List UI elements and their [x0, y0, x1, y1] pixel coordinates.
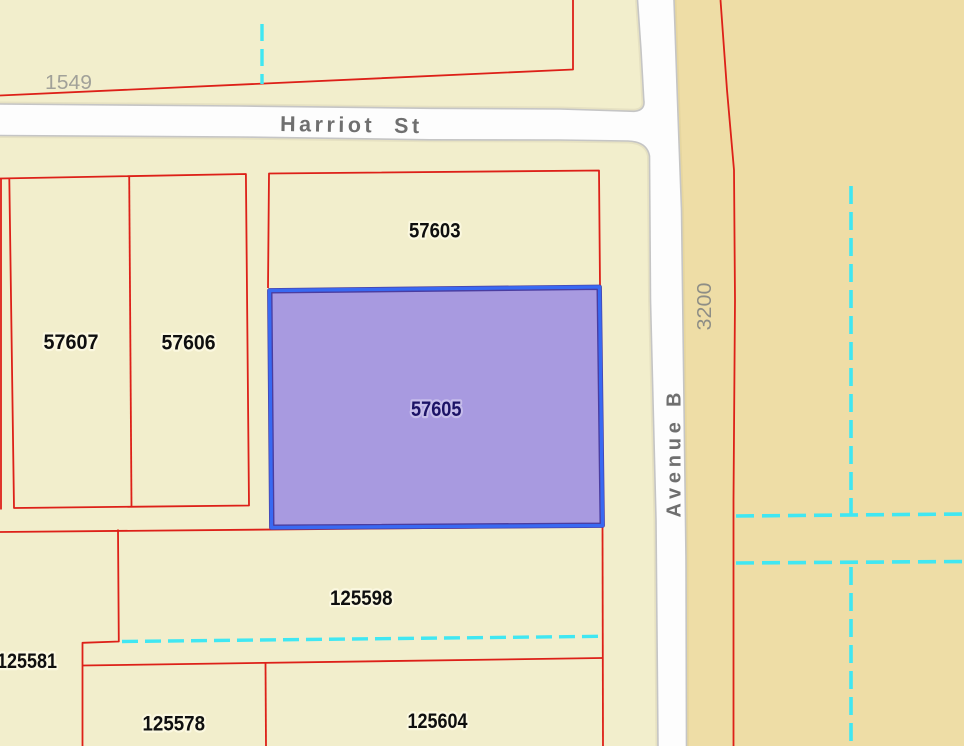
svg-text:57605: 57605 — [411, 398, 462, 421]
svg-text:3200: 3200 — [694, 283, 716, 331]
svg-text:Harriot St: Harriot St — [280, 112, 419, 138]
svg-text:125604: 125604 — [408, 710, 468, 733]
svg-text:57603: 57603 — [409, 220, 461, 243]
svg-text:57607: 57607 — [44, 331, 99, 354]
svg-text:125581: 125581 — [0, 650, 57, 673]
svg-text:125578: 125578 — [143, 713, 206, 736]
svg-text:125598: 125598 — [330, 587, 393, 610]
svg-text:1549: 1549 — [45, 72, 92, 94]
svg-text:57606: 57606 — [162, 331, 216, 354]
